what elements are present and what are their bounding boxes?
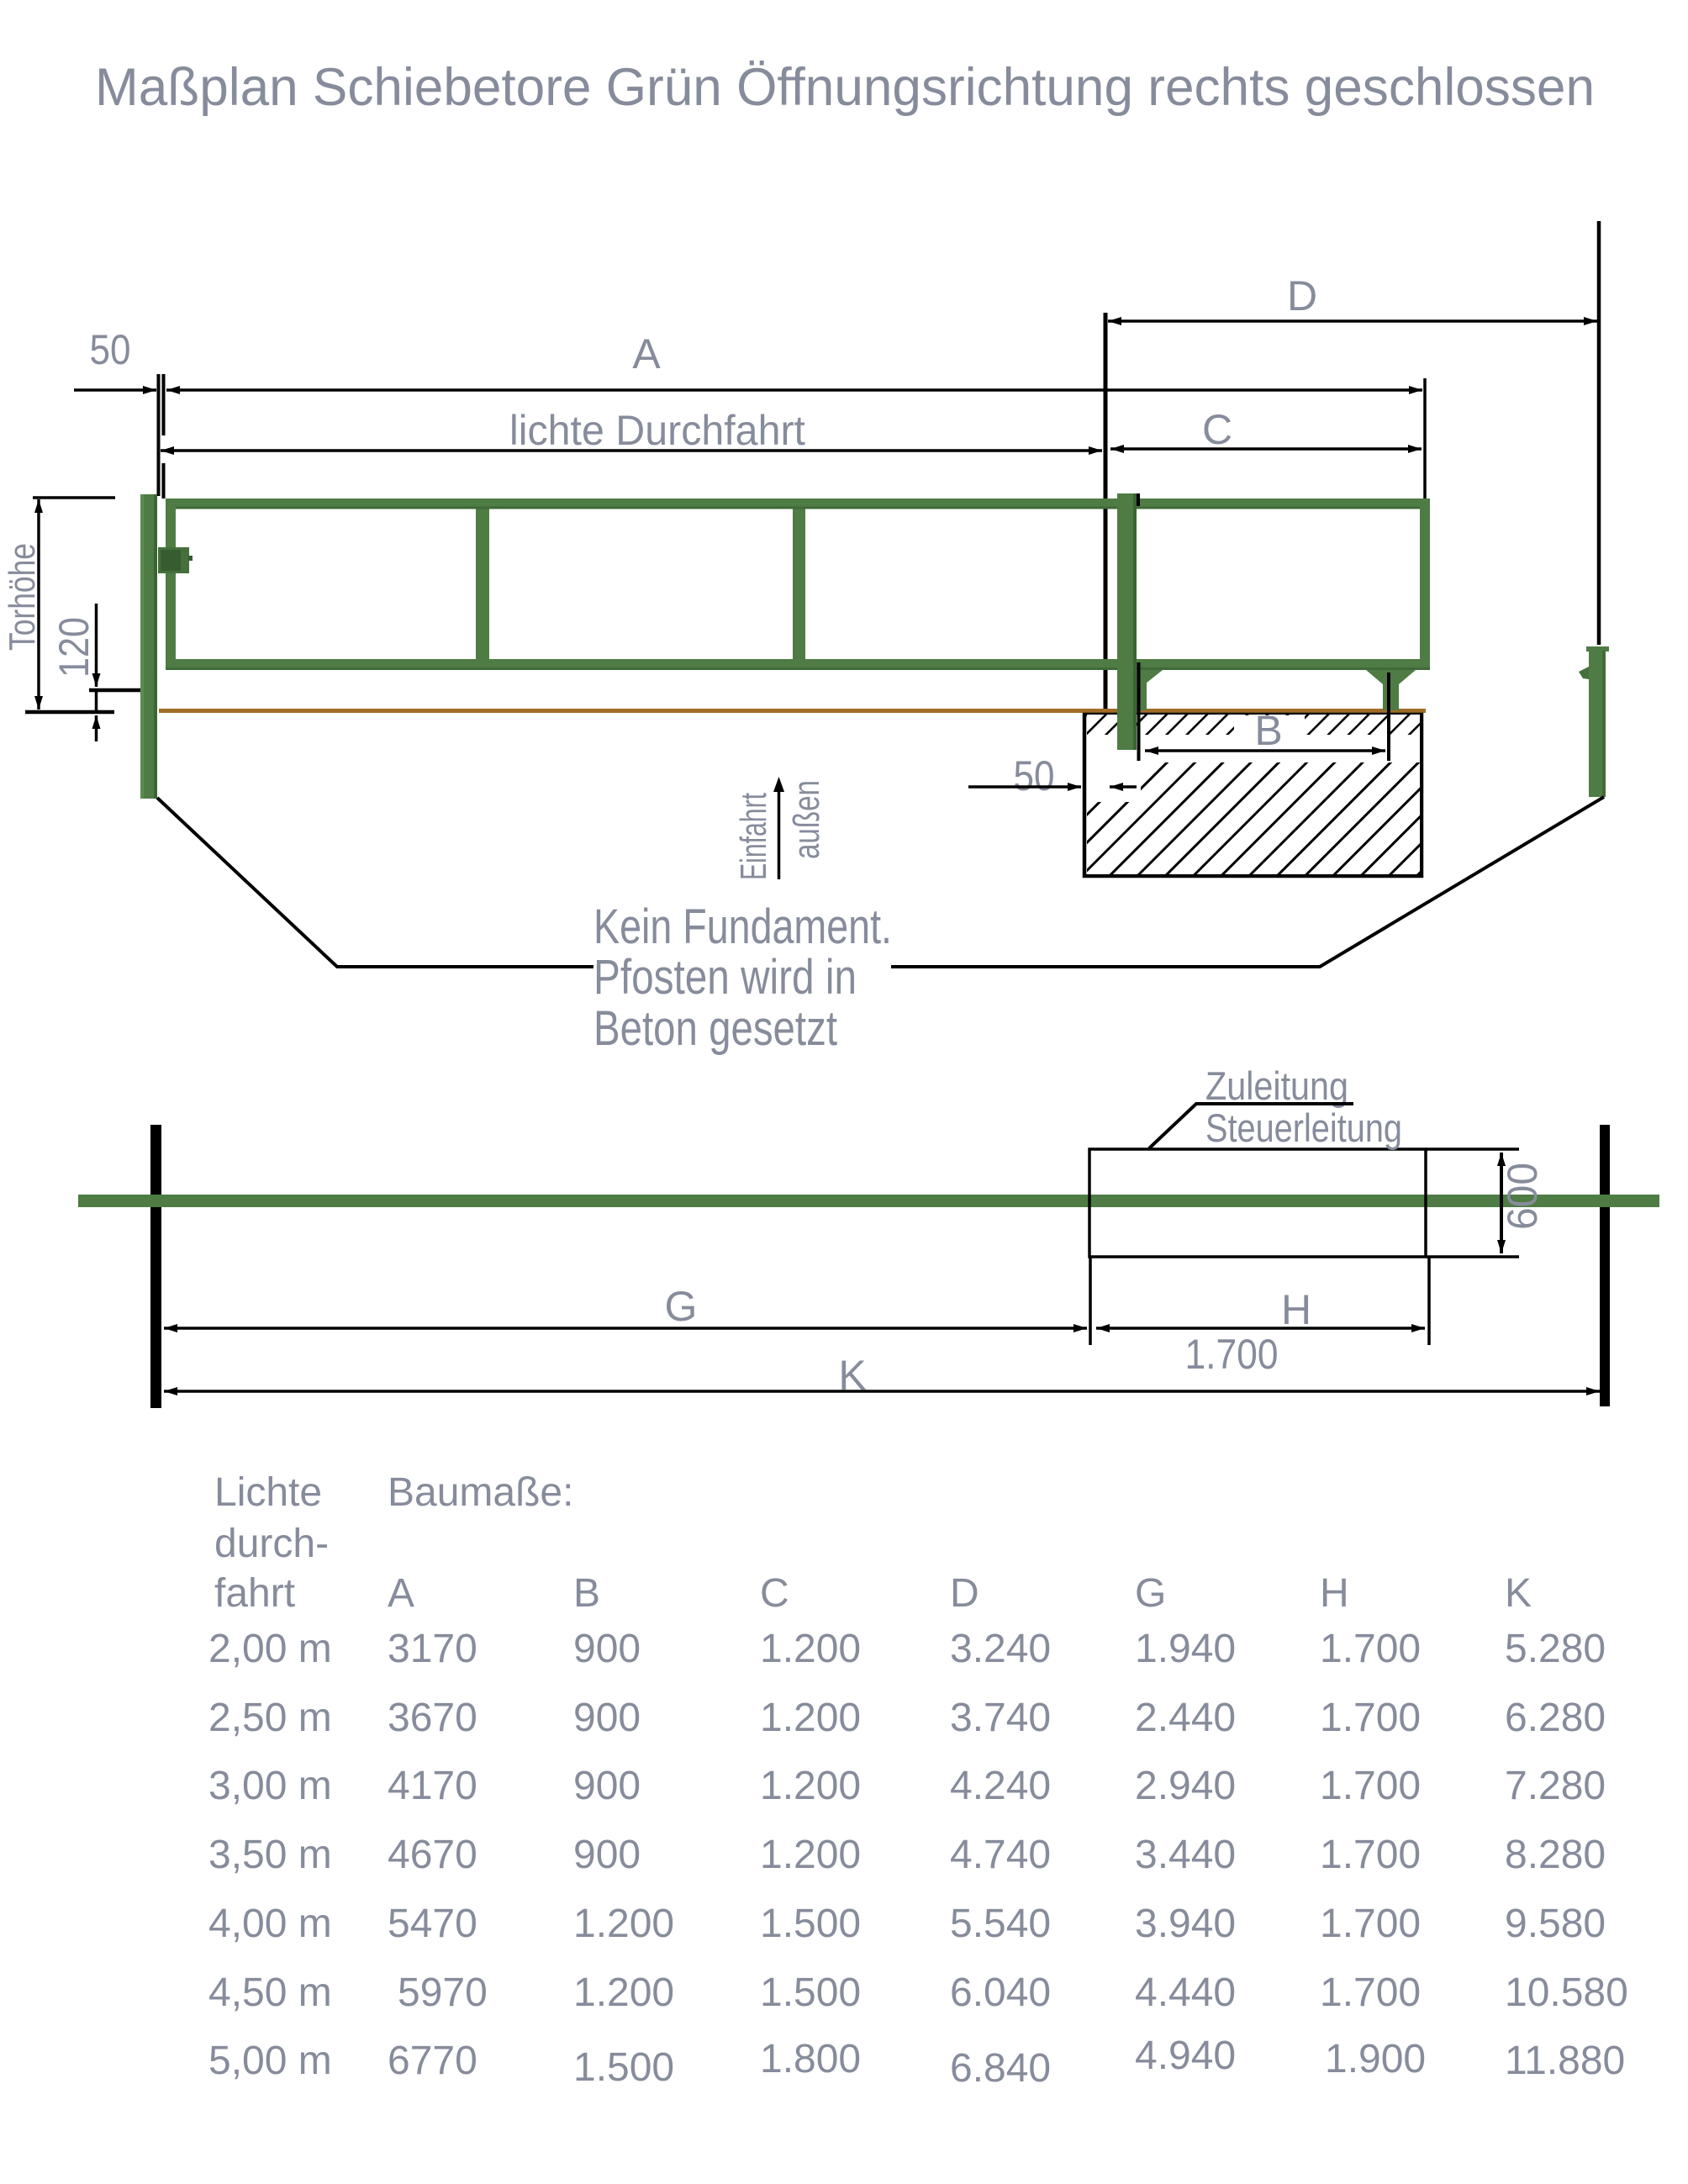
- svg-text:3.240: 3.240: [950, 1627, 1051, 1671]
- svg-text:4,00 m: 4,00 m: [208, 1902, 332, 1946]
- svg-text:4,50 m: 4,50 m: [208, 1970, 332, 2015]
- svg-text:9.580: 9.580: [1505, 1902, 1606, 1946]
- svg-text:C: C: [760, 1571, 789, 1616]
- svg-text:2,50 m: 2,50 m: [208, 1696, 332, 1740]
- svg-text:600: 600: [1499, 1163, 1546, 1230]
- svg-text:Maßplan Schiebetore Grün Öffnu: Maßplan Schiebetore Grün Öffnungsrichtun…: [95, 58, 1595, 117]
- svg-text:3,50 m: 3,50 m: [208, 1833, 332, 1877]
- svg-text:1.500: 1.500: [573, 2045, 674, 2090]
- svg-text:900: 900: [573, 1833, 641, 1877]
- svg-text:durch-: durch-: [214, 1522, 329, 1566]
- svg-text:Steuerleitung: Steuerleitung: [1205, 1105, 1402, 1150]
- svg-text:1.500: 1.500: [760, 1970, 861, 2015]
- svg-text:1.700: 1.700: [1320, 1902, 1421, 1946]
- svg-text:6770: 6770: [388, 2039, 477, 2083]
- svg-text:5970: 5970: [398, 1970, 488, 2015]
- svg-text:Beton gesetzt: Beton gesetzt: [593, 1001, 837, 1056]
- svg-text:B: B: [1254, 707, 1282, 754]
- svg-text:50: 50: [1014, 752, 1055, 799]
- svg-text:50: 50: [90, 326, 131, 373]
- svg-text:8.280: 8.280: [1505, 1833, 1606, 1877]
- svg-text:3670: 3670: [388, 1696, 477, 1740]
- svg-text:1.940: 1.940: [1135, 1627, 1236, 1671]
- svg-text:1.900: 1.900: [1325, 2037, 1426, 2081]
- svg-text:1.200: 1.200: [573, 1902, 674, 1946]
- svg-text:G: G: [665, 1283, 698, 1330]
- svg-text:4.240: 4.240: [950, 1764, 1051, 1808]
- svg-text:5.540: 5.540: [950, 1902, 1051, 1946]
- svg-text:Baumaße:: Baumaße:: [388, 1470, 573, 1515]
- svg-text:5470: 5470: [388, 1902, 477, 1946]
- svg-text:1.200: 1.200: [760, 1764, 861, 1808]
- svg-text:1.700: 1.700: [1320, 1970, 1421, 2015]
- svg-text:C: C: [1202, 406, 1232, 453]
- svg-text:lichte Durchfahrt: lichte Durchfahrt: [509, 407, 805, 454]
- svg-text:2,00 m: 2,00 m: [208, 1627, 332, 1671]
- svg-text:4.940: 4.940: [1135, 2034, 1236, 2078]
- svg-text:4.740: 4.740: [950, 1833, 1051, 1877]
- svg-text:Lichte: Lichte: [214, 1470, 322, 1515]
- svg-text:6.840: 6.840: [950, 2046, 1051, 2091]
- svg-text:11.880: 11.880: [1505, 2039, 1625, 2083]
- svg-text:3170: 3170: [388, 1627, 477, 1671]
- svg-text:10.580: 10.580: [1505, 1970, 1628, 2015]
- svg-text:Zuleitung: Zuleitung: [1205, 1063, 1348, 1108]
- svg-text:H: H: [1320, 1571, 1349, 1616]
- svg-text:3.940: 3.940: [1135, 1902, 1236, 1946]
- svg-text:1.500: 1.500: [760, 1902, 861, 1946]
- svg-text:900: 900: [573, 1764, 641, 1808]
- svg-text:Kein Fundament.: Kein Fundament.: [593, 899, 892, 954]
- svg-text:1.700: 1.700: [1320, 1764, 1421, 1808]
- svg-text:G: G: [1135, 1571, 1166, 1616]
- svg-text:3.440: 3.440: [1135, 1833, 1236, 1877]
- svg-text:1.700: 1.700: [1320, 1833, 1421, 1877]
- svg-text:5,00 m: 5,00 m: [208, 2039, 332, 2083]
- svg-text:1.700: 1.700: [1320, 1627, 1421, 1671]
- svg-text:Pfosten wird in: Pfosten wird in: [593, 950, 857, 1005]
- svg-text:1.200: 1.200: [760, 1627, 861, 1671]
- svg-text:3,00 m: 3,00 m: [208, 1764, 332, 1808]
- svg-text:A: A: [388, 1571, 414, 1616]
- svg-text:B: B: [573, 1571, 600, 1616]
- svg-text:3.740: 3.740: [950, 1696, 1051, 1740]
- svg-text:4670: 4670: [388, 1833, 477, 1877]
- svg-text:6.280: 6.280: [1505, 1696, 1606, 1740]
- svg-text:5.280: 5.280: [1505, 1627, 1606, 1671]
- svg-text:Torhöhe: Torhöhe: [2, 543, 43, 651]
- svg-text:120: 120: [50, 617, 98, 678]
- svg-text:7.280: 7.280: [1505, 1764, 1606, 1808]
- svg-text:Einfahrt: Einfahrt: [733, 793, 774, 880]
- svg-text:H: H: [1281, 1286, 1311, 1333]
- svg-text:2.940: 2.940: [1135, 1764, 1236, 1808]
- svg-text:6.040: 6.040: [950, 1970, 1051, 2015]
- svg-text:4170: 4170: [388, 1764, 477, 1808]
- svg-text:D: D: [950, 1571, 979, 1616]
- svg-text:2.440: 2.440: [1135, 1696, 1236, 1740]
- svg-text:K: K: [1505, 1571, 1532, 1616]
- svg-text:D: D: [1287, 272, 1317, 319]
- svg-text:1.200: 1.200: [760, 1696, 861, 1740]
- svg-text:1.800: 1.800: [760, 2037, 861, 2081]
- svg-text:900: 900: [573, 1627, 641, 1671]
- svg-text:1.700: 1.700: [1185, 1331, 1279, 1378]
- svg-text:außen: außen: [786, 780, 827, 859]
- svg-text:A: A: [632, 330, 661, 377]
- svg-text:900: 900: [573, 1696, 641, 1740]
- svg-text:fahrt: fahrt: [214, 1571, 295, 1616]
- svg-text:1.700: 1.700: [1320, 1696, 1421, 1740]
- svg-text:1.200: 1.200: [573, 1970, 674, 2015]
- svg-text:4.440: 4.440: [1135, 1970, 1236, 2015]
- svg-text:1.200: 1.200: [760, 1833, 861, 1877]
